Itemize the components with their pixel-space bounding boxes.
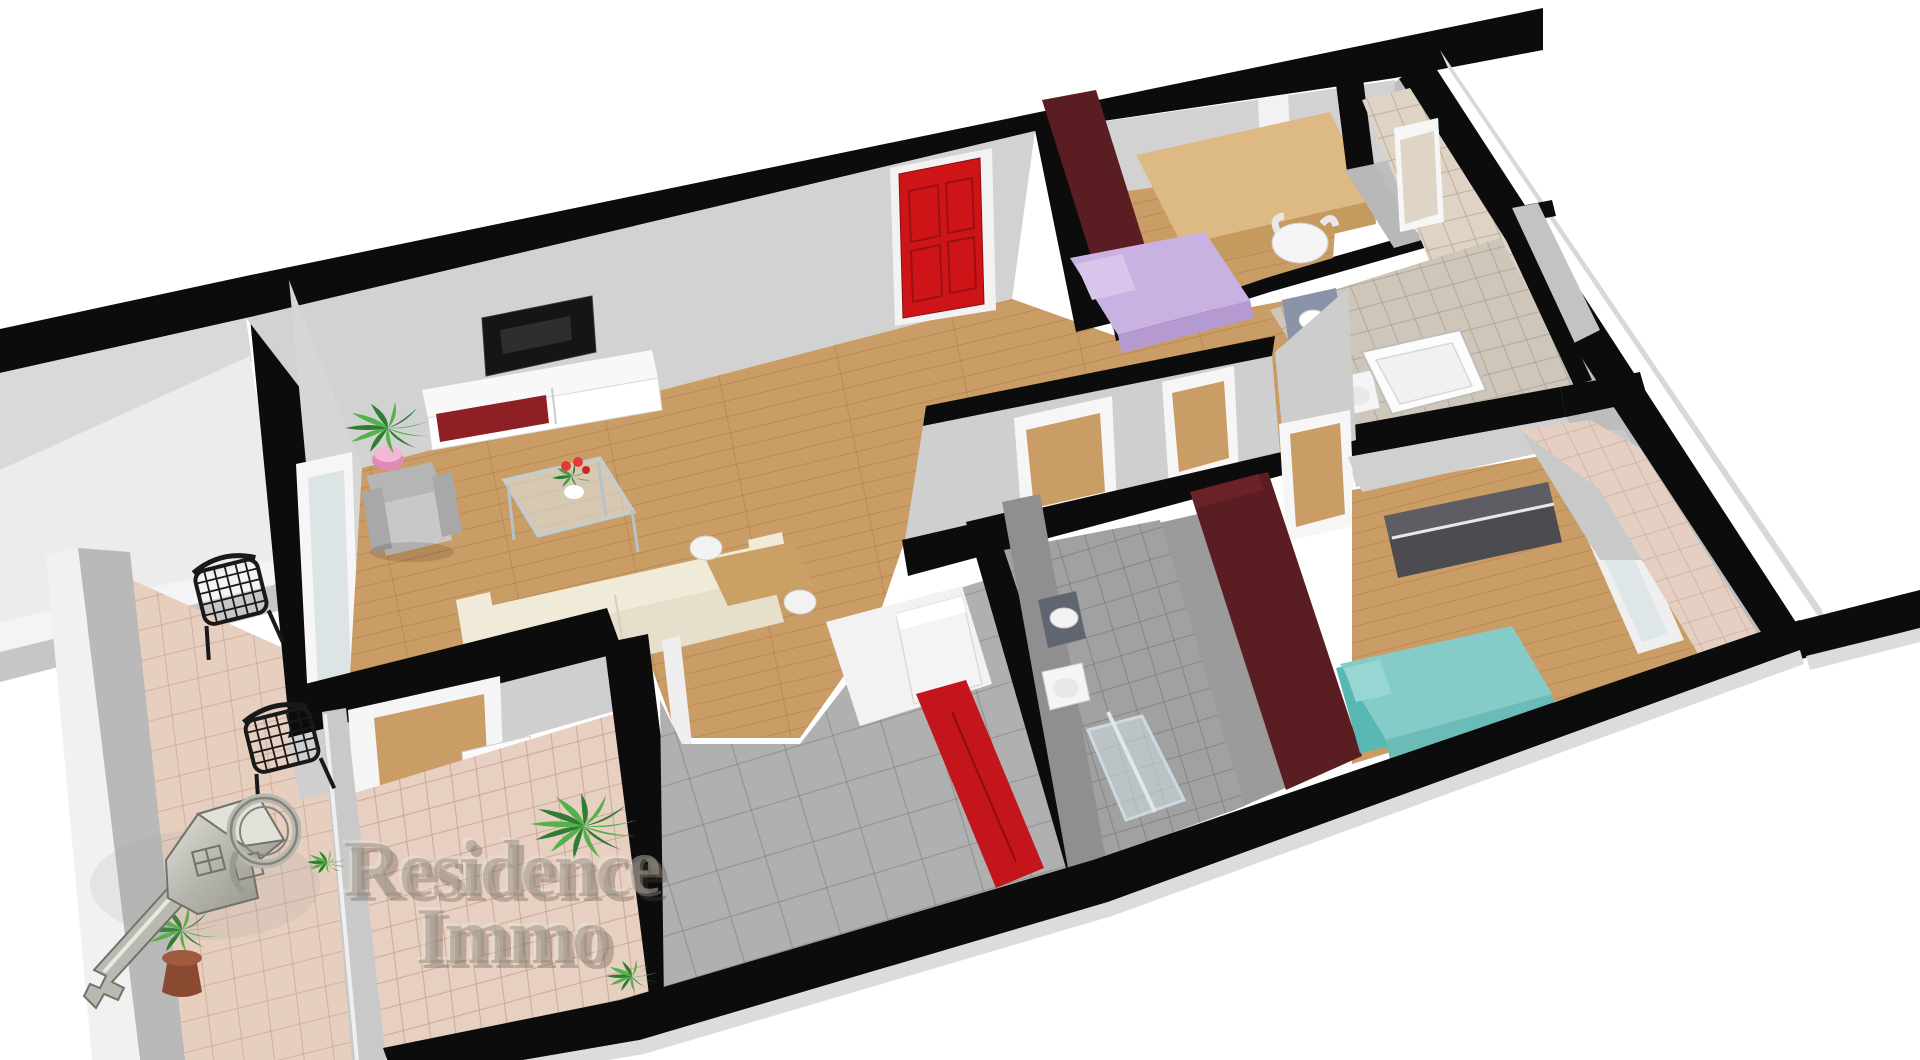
svg-text:Immo: Immo	[416, 893, 612, 981]
